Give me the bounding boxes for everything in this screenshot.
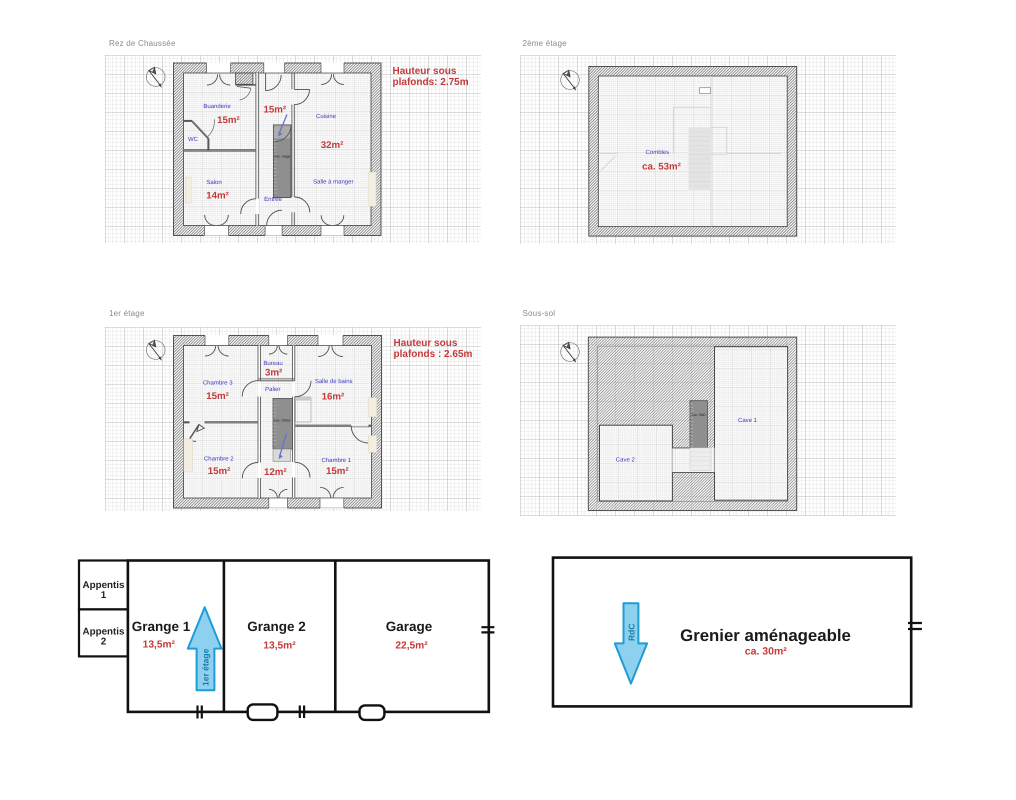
svg-text:2: 2 — [101, 637, 107, 648]
svg-text:Cave 1: Cave 1 — [738, 417, 758, 424]
svg-text:Chambre 2: Chambre 2 — [204, 456, 234, 463]
svg-text:Grenier aménageable: Grenier aménageable — [680, 626, 851, 645]
svg-text:Combles: Combles — [646, 149, 670, 156]
svg-text:12m²: 12m² — [264, 467, 287, 478]
svg-text:Cave 2: Cave 2 — [616, 456, 636, 463]
svg-text:3m²: 3m² — [265, 368, 283, 379]
svg-text:1: 1 — [101, 590, 107, 601]
svg-text:Esc. Cbles: Esc. Cbles — [274, 419, 291, 423]
svg-text:Buanderie: Buanderie — [203, 103, 231, 110]
svg-text:15m²: 15m² — [263, 105, 286, 116]
svg-text:Salle à manger: Salle à manger — [313, 178, 353, 185]
svg-text:Palier: Palier — [265, 386, 280, 393]
svg-text:Bureau: Bureau — [263, 360, 282, 367]
svg-text:32m²: 32m² — [321, 140, 344, 151]
svg-text:Esc. RdC: Esc. RdC — [692, 413, 707, 417]
svg-text:Chambre 1: Chambre 1 — [321, 457, 351, 464]
svg-text:15m²: 15m² — [326, 466, 349, 477]
svg-text:15m²: 15m² — [208, 466, 231, 477]
svg-text:Garage: Garage — [386, 619, 433, 634]
svg-text:Salon: Salon — [206, 179, 221, 186]
svg-text:Grange 2: Grange 2 — [247, 619, 306, 634]
svg-text:15m²: 15m² — [217, 115, 240, 126]
svg-text:RdC: RdC — [627, 624, 637, 641]
svg-text:Cuisine: Cuisine — [316, 113, 337, 120]
svg-text:16m²: 16m² — [322, 391, 345, 402]
svg-text:Salle de bains: Salle de bains — [315, 378, 353, 385]
svg-text:1er étage: 1er étage — [201, 648, 211, 686]
svg-text:Entrée: Entrée — [264, 196, 282, 203]
svg-text:Esc. étage: Esc. étage — [274, 154, 290, 158]
svg-text:22,5m²: 22,5m² — [395, 640, 428, 651]
svg-text:WC: WC — [188, 136, 199, 143]
svg-text:14m²: 14m² — [206, 190, 229, 201]
svg-text:ca. 30m²: ca. 30m² — [745, 646, 788, 658]
svg-text:15m²: 15m² — [206, 391, 229, 402]
svg-text:13,5m²: 13,5m² — [263, 640, 296, 651]
svg-text:Chambre 3: Chambre 3 — [203, 380, 233, 387]
svg-text:Grange 1: Grange 1 — [132, 619, 191, 634]
svg-text:13,5m²: 13,5m² — [143, 640, 176, 651]
svg-text:ca. 53m²: ca. 53m² — [642, 161, 682, 172]
